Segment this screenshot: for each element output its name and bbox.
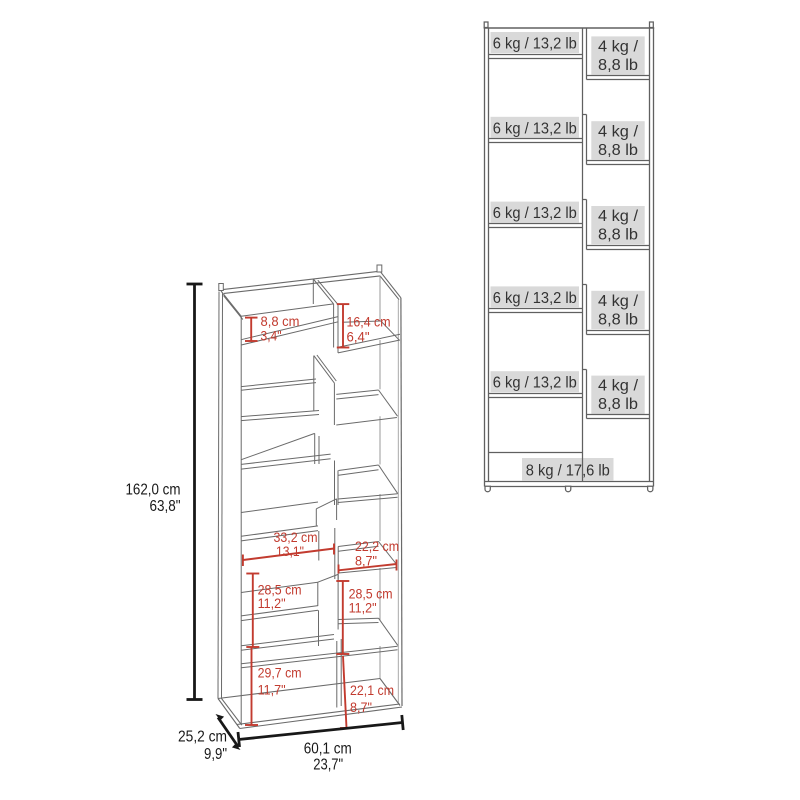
svg-text:63,8": 63,8"	[150, 498, 181, 515]
svg-text:6 kg / 13,2 lb: 6 kg / 13,2 lb	[493, 36, 577, 53]
svg-text:28,5 cm: 28,5 cm	[349, 587, 393, 602]
svg-text:33,2 cm: 33,2 cm	[274, 530, 318, 545]
svg-text:4 kg /: 4 kg /	[598, 39, 639, 56]
svg-text:8,8 lb: 8,8 lb	[598, 396, 638, 413]
svg-text:4 kg /: 4 kg /	[598, 123, 639, 140]
svg-text:6,4": 6,4"	[347, 330, 370, 345]
svg-text:4 kg /: 4 kg /	[598, 208, 639, 225]
svg-text:8,8 lb: 8,8 lb	[598, 227, 638, 244]
svg-text:8,8 lb: 8,8 lb	[598, 311, 638, 328]
svg-text:29,7 cm: 29,7 cm	[258, 666, 302, 681]
svg-text:6 kg / 13,2 lb: 6 kg / 13,2 lb	[493, 375, 577, 392]
svg-text:11,7": 11,7"	[258, 683, 286, 698]
svg-text:22,2 cm: 22,2 cm	[355, 539, 399, 554]
svg-text:162,0 cm: 162,0 cm	[126, 482, 181, 499]
svg-text:8,7": 8,7"	[355, 554, 377, 569]
svg-text:4 kg /: 4 kg /	[598, 293, 639, 310]
svg-text:8 kg / 17,6 lb: 8 kg / 17,6 lb	[526, 463, 610, 480]
svg-text:11,2": 11,2"	[349, 601, 377, 616]
svg-text:9,9": 9,9"	[204, 746, 227, 763]
svg-text:23,7": 23,7"	[313, 757, 343, 774]
svg-text:4 kg /: 4 kg /	[598, 378, 639, 395]
svg-text:8,8 lb: 8,8 lb	[598, 57, 638, 74]
svg-text:13,1": 13,1"	[276, 544, 304, 559]
svg-text:25,2 cm: 25,2 cm	[178, 729, 227, 746]
svg-text:3,4": 3,4"	[261, 329, 282, 344]
svg-text:11,2": 11,2"	[258, 596, 286, 611]
svg-text:22,1 cm: 22,1 cm	[350, 683, 394, 698]
svg-text:16,4 cm: 16,4 cm	[347, 315, 391, 330]
svg-text:6 kg / 13,2 lb: 6 kg / 13,2 lb	[493, 290, 577, 307]
svg-text:6 kg / 13,2 lb: 6 kg / 13,2 lb	[493, 205, 577, 222]
svg-text:6 kg / 13,2 lb: 6 kg / 13,2 lb	[493, 120, 577, 137]
svg-text:60,1 cm: 60,1 cm	[304, 741, 352, 758]
svg-text:8,7": 8,7"	[350, 700, 372, 715]
svg-text:8,8 cm: 8,8 cm	[261, 314, 300, 329]
svg-text:8,8 lb: 8,8 lb	[598, 142, 638, 159]
